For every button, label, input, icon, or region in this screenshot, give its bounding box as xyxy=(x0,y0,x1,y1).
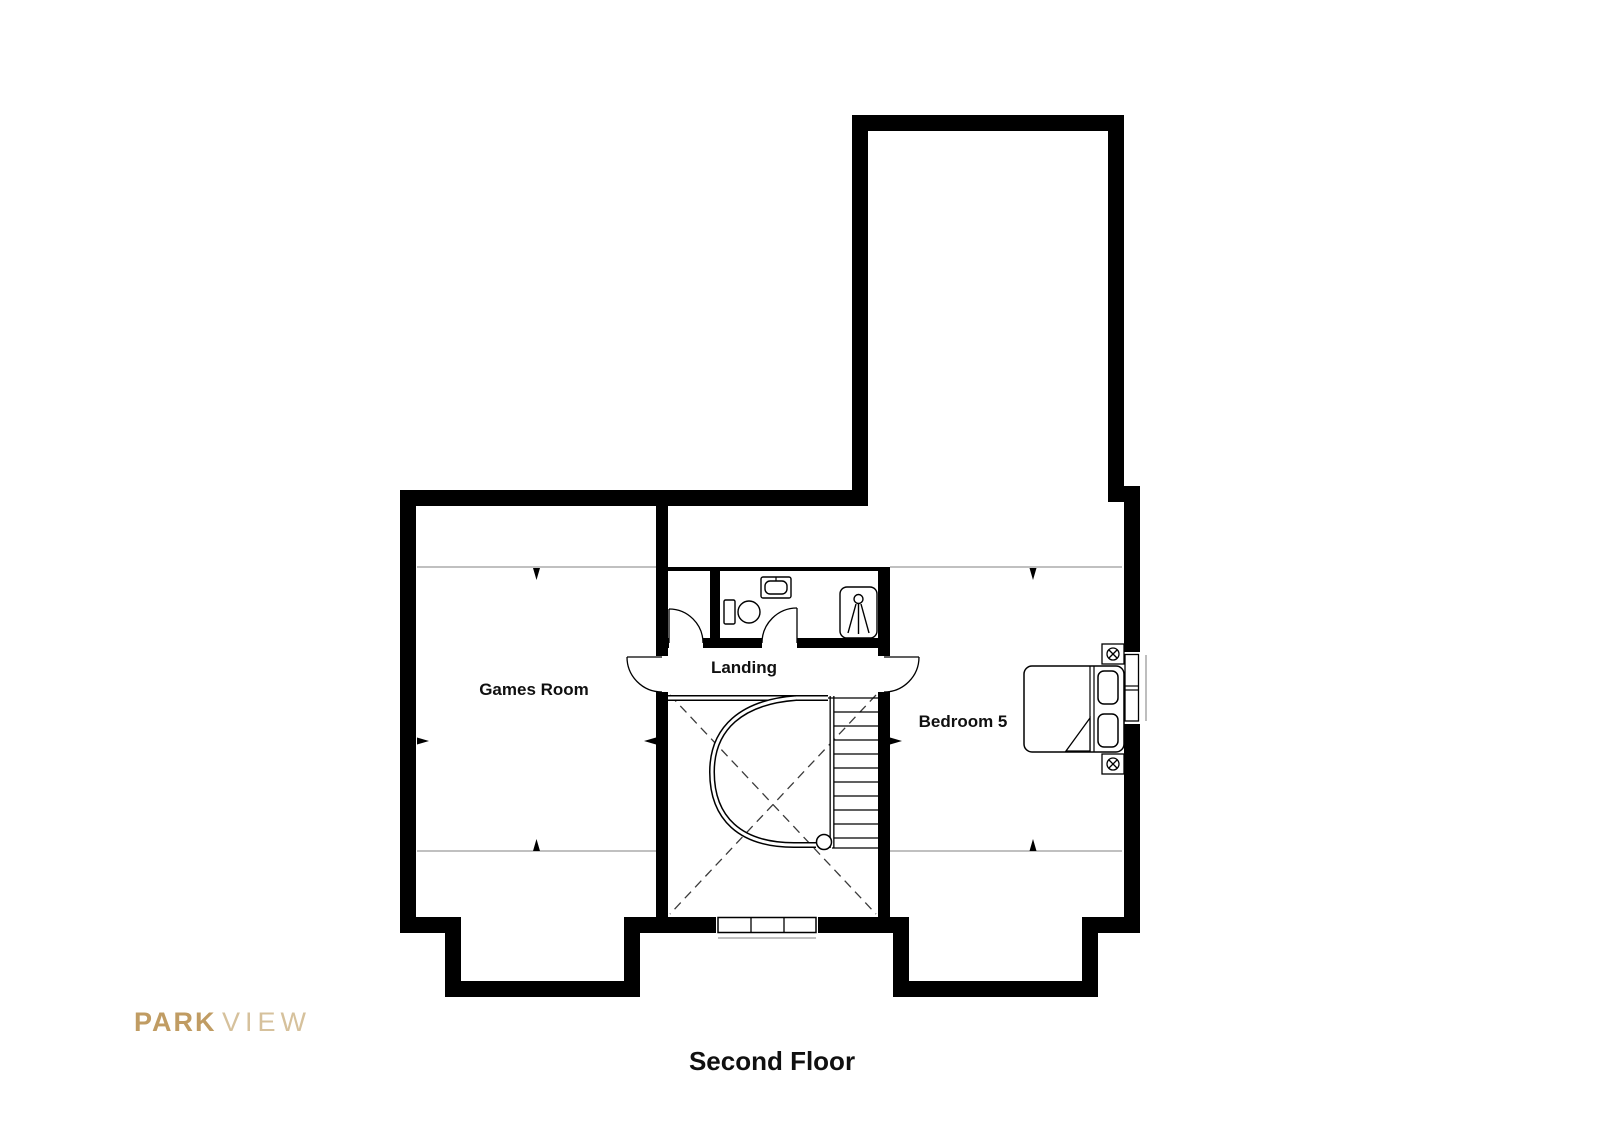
window-icon xyxy=(1122,652,1146,724)
wall-bedroom-left-upper xyxy=(878,567,890,656)
floor-plan-page: Games Room Landing Bedroom 5 PARK VIEW S… xyxy=(0,0,1600,1131)
wall-landing-top-b xyxy=(703,638,762,648)
window-icon xyxy=(716,914,818,938)
wall-cupboard-divider xyxy=(710,567,720,648)
logo-park: PARK xyxy=(134,1007,217,1037)
washbasin-icon xyxy=(761,577,791,598)
outer-walls xyxy=(408,123,1132,989)
pillow-icon xyxy=(1098,671,1118,704)
bedside-lamp-icon xyxy=(1102,644,1124,664)
games-room-label: Games Room xyxy=(479,680,589,699)
wall-landing-top-c xyxy=(797,638,878,648)
outer-wall-path xyxy=(408,123,1132,989)
floor-plan-svg: Games Room Landing Bedroom 5 PARK VIEW S… xyxy=(0,0,1600,1131)
bedroom5-label: Bedroom 5 xyxy=(919,712,1008,731)
landing-label: Landing xyxy=(711,658,777,677)
wall-games-right-upper xyxy=(656,506,668,656)
toilet-icon xyxy=(724,600,760,624)
pillow-icon xyxy=(1098,714,1118,747)
shower-icon xyxy=(840,587,877,638)
bed-icon xyxy=(1024,666,1124,752)
footer: PARK VIEW Second Floor xyxy=(134,1007,855,1076)
wall-landing-top-a xyxy=(656,638,669,648)
wall-bathroom-top xyxy=(656,567,878,571)
logo-view: VIEW xyxy=(222,1007,311,1037)
plan-title: Second Floor xyxy=(689,1046,855,1076)
wall-games-right-lower xyxy=(656,692,668,917)
wall-bedroom-left-lower xyxy=(878,692,890,917)
bedside-lamp-icon xyxy=(1102,754,1124,774)
